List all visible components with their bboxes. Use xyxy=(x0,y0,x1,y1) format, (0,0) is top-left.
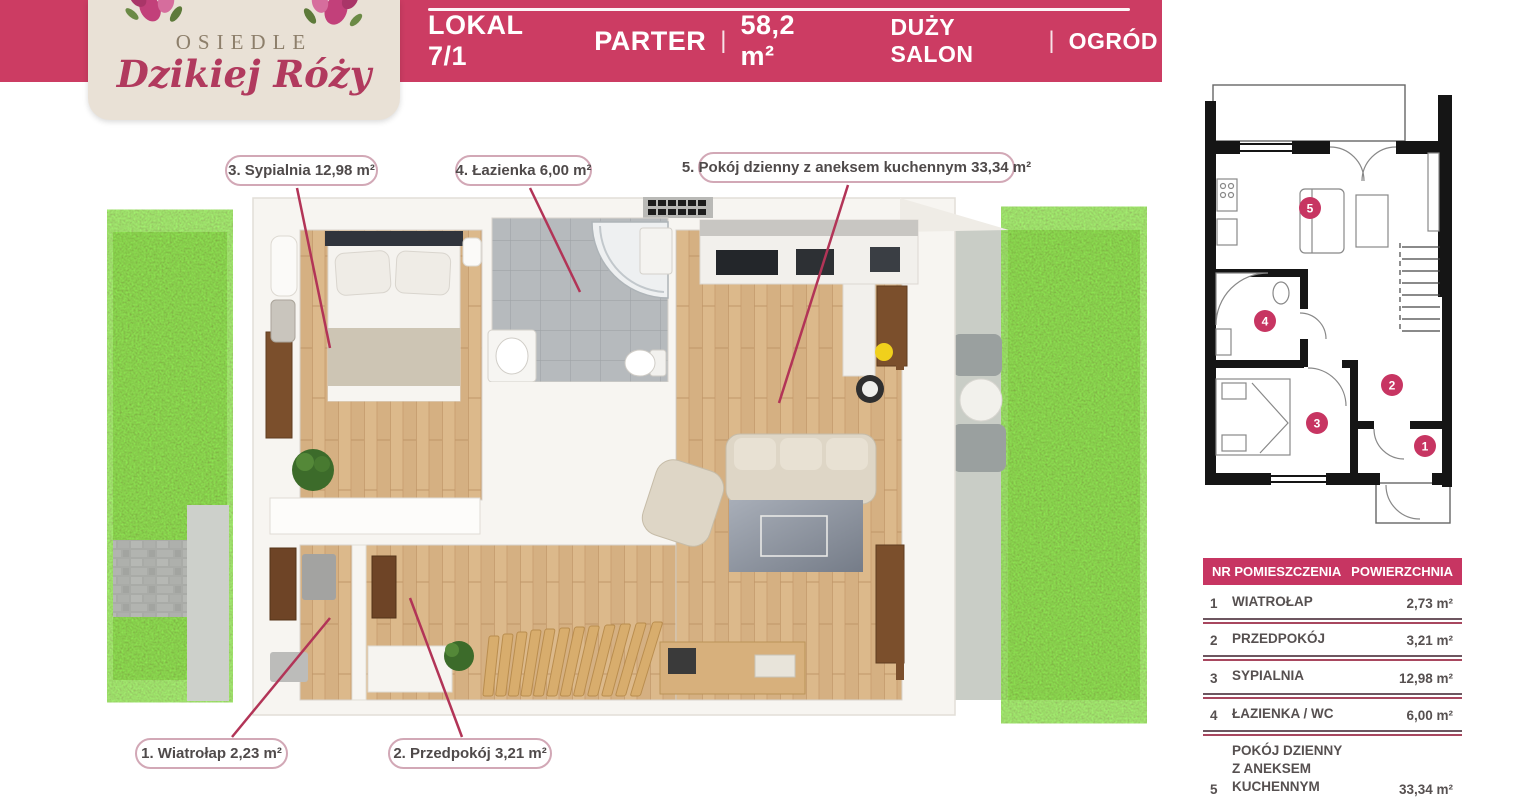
patio-table xyxy=(960,379,1002,421)
area-label: 58,2 m² xyxy=(741,10,831,72)
table-row: 5 POKÓJ DZIENNY Z ANEKSEM KUCHENNYM 33,3… xyxy=(1203,734,1462,801)
window-frame xyxy=(896,300,904,370)
entry-porch xyxy=(1376,483,1450,523)
plant xyxy=(292,449,334,491)
patio-right xyxy=(952,228,1140,700)
washing-machine xyxy=(640,228,672,274)
hall-sideboard xyxy=(368,646,452,692)
kitchen-cabinets xyxy=(700,220,918,284)
garden-left xyxy=(113,232,229,701)
kitchen-appliance xyxy=(870,247,900,272)
room-marker-1: 1 xyxy=(1422,440,1429,454)
terrace xyxy=(1213,85,1405,141)
page: LOKAL 7/1 PARTER | 58,2 m² DUŻY SALON | … xyxy=(0,0,1530,801)
bedroom-wardrobe-door xyxy=(266,332,292,438)
door-frame xyxy=(896,560,904,680)
nightstand xyxy=(271,236,297,296)
feature-salon: DUŻY SALON xyxy=(890,14,1034,68)
label-pokoj-dzienny: 5. Pokój dzienny z aneksem kuchennym 33,… xyxy=(698,152,1015,183)
room-marker-3: 3 xyxy=(1314,417,1321,431)
rose-right-icon xyxy=(302,0,365,28)
label-wiatrolap: 1. Wiatrołap 2,23 m² xyxy=(135,738,288,769)
garden-right xyxy=(1008,230,1140,700)
row-separator xyxy=(1203,655,1462,657)
row-separator xyxy=(1203,730,1462,732)
area-table: NR POMIESZCZENIA POWIERZCHNIA 1 WIATROŁA… xyxy=(1203,558,1462,801)
bed xyxy=(325,231,463,401)
estate-name: Dzikiej Róży xyxy=(88,52,400,96)
row-separator xyxy=(1203,693,1462,695)
table-row: 1 WIATROŁAP 2,73 m² xyxy=(1203,585,1462,618)
doormat xyxy=(302,554,336,600)
rug xyxy=(729,500,863,572)
label-przedpokoj: 2. Przedpokój 3,21 m² xyxy=(388,738,552,769)
walkway-left xyxy=(187,505,229,701)
espresso-machine xyxy=(668,648,696,674)
floorplan-2d-mini: 5 4 3 2 1 xyxy=(1200,83,1462,528)
nightstand xyxy=(463,238,481,266)
table-header-rooms: NR POMIESZCZENIA xyxy=(1212,564,1341,579)
feature-ogrod: OGRÓD xyxy=(1069,28,1158,55)
table-row: 2 PRZEDPOKÓJ 3,21 m² xyxy=(1203,622,1462,655)
floor-label: PARTER xyxy=(594,26,706,57)
table-header: NR POMIESZCZENIA POWIERZCHNIA xyxy=(1203,558,1462,585)
living-room xyxy=(638,220,918,700)
french-doors xyxy=(1330,147,1396,181)
hall-cabinet xyxy=(372,556,396,618)
kitchen-counter xyxy=(843,284,875,376)
furniture-2d xyxy=(1216,153,1439,519)
dresser xyxy=(271,300,295,342)
unit-label: LOKAL 7/1 xyxy=(428,10,561,72)
bathroom xyxy=(485,218,672,396)
table-row: 3 SYPIALNIA 12,98 m² xyxy=(1203,659,1462,692)
coffee-sideboard xyxy=(660,642,805,694)
estate-logo: OSIEDLE Dzikiej Róży xyxy=(88,0,400,120)
cooktop xyxy=(716,250,778,275)
rose-left-icon xyxy=(124,0,185,25)
toilet xyxy=(625,350,666,376)
header-separator-2: | xyxy=(1034,27,1068,55)
bedroom-console xyxy=(270,498,480,534)
entry-wardrobe xyxy=(270,548,296,620)
header-separator: | xyxy=(706,27,740,55)
room-marker-5: 5 xyxy=(1307,202,1314,216)
room-marker-2: 2 xyxy=(1389,379,1396,393)
table-header-area: POWIERZCHNIA xyxy=(1351,564,1453,579)
table-row: 4 ŁAZIENKA / WC 6,00 m² xyxy=(1203,697,1462,730)
garden-path xyxy=(113,540,189,617)
floorplan-3d-render xyxy=(95,150,1175,790)
flowers xyxy=(875,343,893,361)
room-marker-4: 4 xyxy=(1262,315,1269,329)
stairs-2d xyxy=(1400,243,1440,331)
patio-chair xyxy=(952,334,1002,376)
sofa xyxy=(726,434,876,504)
patio-chair xyxy=(952,424,1006,472)
header-title: LOKAL 7/1 PARTER | 58,2 m² DUŻY SALON | … xyxy=(428,0,1158,82)
label-lazienka: 4. Łazienka 6,00 m² xyxy=(455,155,592,186)
label-sypialnia: 3. Sypialnia 12,98 m² xyxy=(225,155,378,186)
row-separator xyxy=(1203,618,1462,620)
kitchen-sink xyxy=(796,249,834,275)
